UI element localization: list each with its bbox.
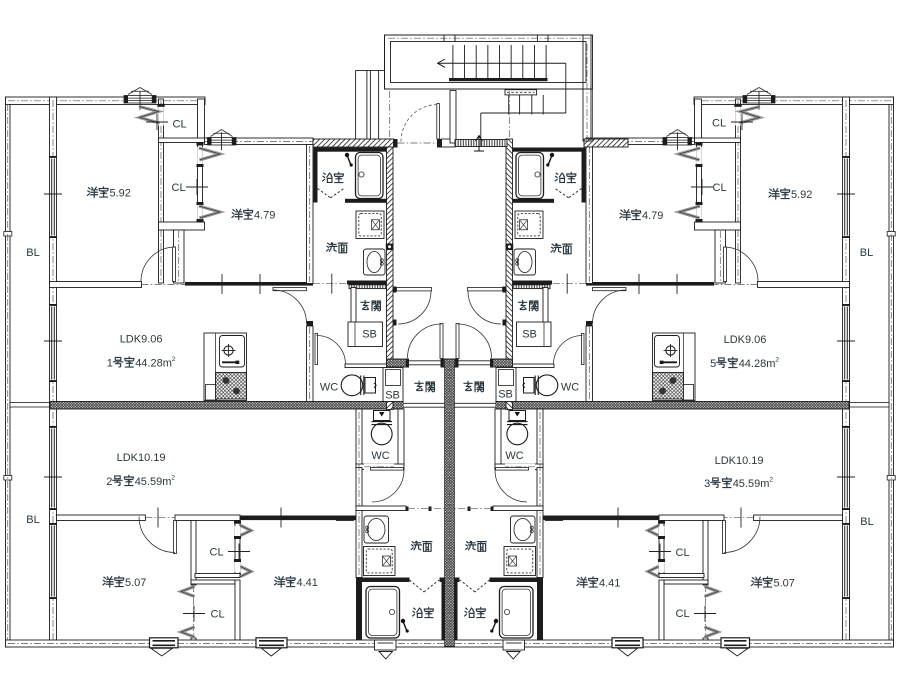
svg-text:m: m — [766, 358, 775, 370]
svg-text:SB: SB — [362, 329, 377, 341]
svg-text:CL: CL — [173, 119, 187, 131]
svg-text:m: m — [162, 476, 171, 488]
svg-text:BL: BL — [26, 514, 39, 526]
svg-text:2: 2 — [775, 357, 779, 364]
svg-text:BL: BL — [26, 247, 39, 259]
svg-text:44.28: 44.28 — [739, 358, 767, 370]
svg-text:WC: WC — [505, 450, 523, 462]
svg-text:SB: SB — [522, 329, 537, 341]
svg-text:5.92: 5.92 — [791, 189, 812, 201]
svg-text:CL: CL — [211, 609, 225, 621]
svg-text:CL: CL — [676, 608, 690, 620]
svg-text:WC: WC — [561, 382, 579, 394]
svg-text:LDK10.19: LDK10.19 — [117, 452, 166, 464]
svg-text:4.79: 4.79 — [254, 210, 275, 222]
svg-text:5.92: 5.92 — [110, 188, 131, 200]
svg-text:CL: CL — [676, 547, 690, 559]
svg-text:m: m — [163, 358, 172, 370]
svg-text:2: 2 — [171, 475, 175, 482]
svg-text:m: m — [760, 478, 769, 490]
svg-text:BL: BL — [860, 516, 873, 528]
svg-text:3: 3 — [704, 478, 710, 490]
svg-text:WC: WC — [320, 382, 338, 394]
svg-text:SB: SB — [385, 390, 400, 402]
svg-text:2: 2 — [172, 356, 176, 363]
svg-text:1: 1 — [107, 358, 113, 370]
svg-text:5: 5 — [710, 358, 716, 370]
svg-text:5.07: 5.07 — [125, 577, 146, 589]
svg-text:2: 2 — [769, 477, 773, 484]
svg-text:CL: CL — [712, 118, 726, 130]
svg-text:CL: CL — [713, 182, 727, 194]
svg-text:4.41: 4.41 — [297, 577, 318, 589]
svg-text:2: 2 — [106, 476, 112, 488]
svg-text:45.59: 45.59 — [135, 476, 163, 488]
svg-text:45.59: 45.59 — [733, 478, 761, 490]
svg-text:WC: WC — [371, 450, 389, 462]
svg-text:CL: CL — [210, 547, 224, 559]
svg-text:44.28: 44.28 — [135, 358, 163, 370]
svg-text:CL: CL — [172, 182, 186, 194]
svg-text:LDK10.19: LDK10.19 — [715, 455, 764, 467]
svg-text:5.07: 5.07 — [774, 578, 795, 590]
svg-text:LDK9.06: LDK9.06 — [120, 334, 163, 346]
svg-text:4.79: 4.79 — [642, 210, 663, 222]
svg-text:SB: SB — [498, 389, 513, 401]
svg-text:4.41: 4.41 — [599, 578, 620, 590]
svg-text:BL: BL — [860, 247, 873, 259]
svg-text:LDK9.06: LDK9.06 — [724, 334, 767, 346]
